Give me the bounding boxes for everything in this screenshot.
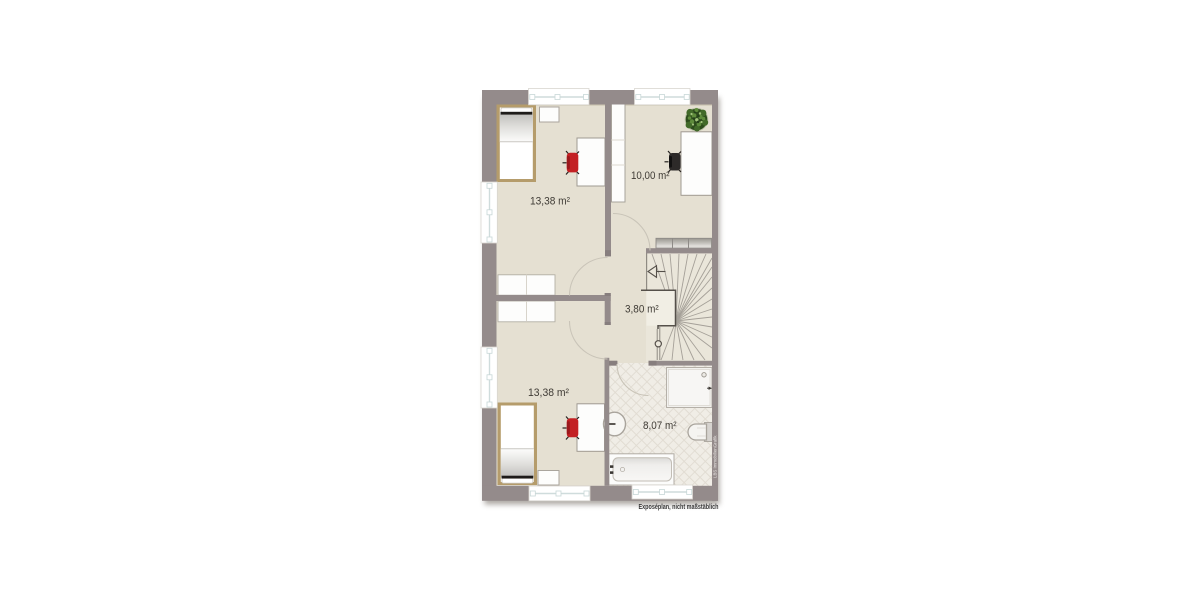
svg-text:LBS ImmobilienGrafik: LBS ImmobilienGrafik bbox=[713, 435, 718, 478]
svg-text:Exposéplan, nicht maßstäblich: Exposéplan, nicht maßstäblich bbox=[639, 502, 719, 511]
svg-text:13,38 m²: 13,38 m² bbox=[530, 196, 570, 208]
svg-text:13,38 m²: 13,38 m² bbox=[528, 387, 569, 399]
svg-text:8,07 m²: 8,07 m² bbox=[643, 420, 677, 432]
svg-text:10,00 m²: 10,00 m² bbox=[631, 170, 670, 182]
svg-text:3,80 m²: 3,80 m² bbox=[625, 304, 659, 316]
